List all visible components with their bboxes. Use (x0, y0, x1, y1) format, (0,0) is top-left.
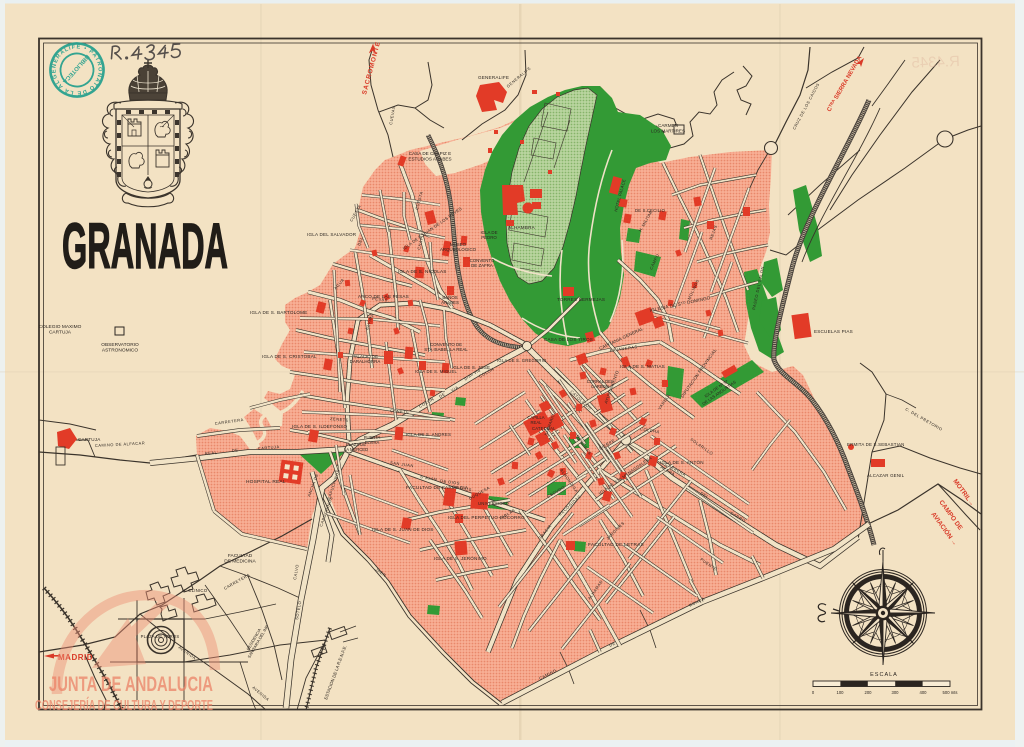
svg-text:TORRES BERMEJAS: TORRES BERMEJAS (557, 297, 605, 302)
svg-text:CASA DE LOS TIROS: CASA DE LOS TIROS (544, 337, 593, 342)
svg-text:FACULTADDE MEDICINA: FACULTADDE MEDICINA (224, 553, 256, 565)
svg-text:ERMITA DE S.SEBASTIAN: ERMITA DE S.SEBASTIAN (847, 442, 905, 447)
svg-text:PALACIO DEDARALHORRA: PALACIO DEDARALHORRA (350, 354, 381, 364)
svg-text:JUNTA DE ANDALUCIA: JUNTA DE ANDALUCIA (49, 673, 213, 696)
svg-text:IGLA DE S. CRISTOBAL: IGLA DE S. CRISTOBAL (262, 354, 317, 359)
svg-text:DE: DE (232, 447, 239, 453)
svg-text:OBSERVATORIOASTRONOMICO: OBSERVATORIOASTRONOMICO (101, 342, 139, 354)
svg-text:IGLA DE S. BARTOLOME: IGLA DE S. BARTOLOME (250, 310, 307, 315)
svg-text:200: 200 (865, 690, 873, 695)
svg-text:IGLA DE S. ANDRES: IGLA DE S. ANDRES (406, 432, 451, 437)
svg-text:IGLA DE S. MATIAS: IGLA DE S. MATIAS (620, 364, 665, 369)
svg-text:IGLA DEPEDRO: IGLA DEPEDRO (480, 230, 497, 240)
svg-text:H. CLINICO: H. CLINICO (182, 588, 208, 593)
svg-text:GENERALIFE: GENERALIFE (478, 75, 509, 80)
svg-text:IGLA DE S. JOSE: IGLA DE S. JOSE (452, 365, 490, 370)
svg-text:IGLA DE S. ILDEFONSO: IGLA DE S. ILDEFONSO (292, 424, 348, 429)
svg-text:300: 300 (892, 690, 900, 695)
svg-text:CASA DE CHAPIZ EESTUDIOS ARABE: CASA DE CHAPIZ EESTUDIOS ARABES (408, 151, 451, 161)
svg-text:ESCALA: ESCALA (870, 672, 898, 678)
svg-text:IGLA DEL PERPETUO SOCORRO: IGLA DEL PERPETUO SOCORRO (448, 515, 525, 520)
svg-text:HOSPITAL REAL: HOSPITAL REAL (246, 479, 286, 485)
svg-text:ESCUELAS PIAS: ESCUELAS PIAS (814, 329, 853, 334)
svg-text:IGLA DE S. JUAN DE DIOS: IGLA DE S. JUAN DE DIOS (372, 527, 434, 532)
svg-text:ALCAZAR GENIL: ALCAZAR GENIL (867, 473, 905, 478)
svg-text:CONVENTODE ZAFRA: CONVENTODE ZAFRA (470, 258, 495, 268)
svg-text:500 mts: 500 mts (943, 690, 958, 695)
svg-text:R.4345: R.4345 (911, 53, 960, 72)
svg-text:100: 100 (837, 690, 845, 695)
svg-text:IGLA DE S. NICOLAS: IGLA DE S. NICOLAS (398, 269, 447, 274)
svg-text:PLAZA DE TOROS: PLAZA DE TOROS (141, 634, 180, 639)
svg-text:BAÑOSARABES: BAÑOSARABES (441, 295, 459, 305)
svg-text:PUERTAELVIRA: PUERTAELVIRA (364, 435, 381, 445)
svg-text:IGLA DE S. JERÓNIMO: IGLA DE S. JERÓNIMO (434, 555, 487, 561)
svg-text:CARTUJA: CARTUJA (78, 437, 101, 442)
svg-text:IGLA DE S. GREGORIO: IGLA DE S. GREGORIO (497, 358, 547, 363)
svg-text:GRANADA: GRANADA (62, 210, 228, 282)
svg-text:CONSEJERÍA DE CULTURA Y DEPORT: CONSEJERÍA DE CULTURA Y DEPORTE (35, 697, 213, 714)
svg-text:400: 400 (920, 690, 928, 695)
svg-text:CONVENTO DESTA ISABEL LA REAL: CONVENTO DESTA ISABEL LA REAL (424, 342, 468, 352)
svg-text:IGLA DEL SALVADOR: IGLA DEL SALVADOR (307, 232, 357, 237)
svg-text:ALHAMBRA: ALHAMBRA (508, 225, 536, 230)
svg-text:FACULTAD DE LETRAS: FACULTAD DE LETRAS (588, 542, 644, 548)
svg-text:UNIVERSIDAD: UNIVERSIDAD (478, 501, 509, 506)
